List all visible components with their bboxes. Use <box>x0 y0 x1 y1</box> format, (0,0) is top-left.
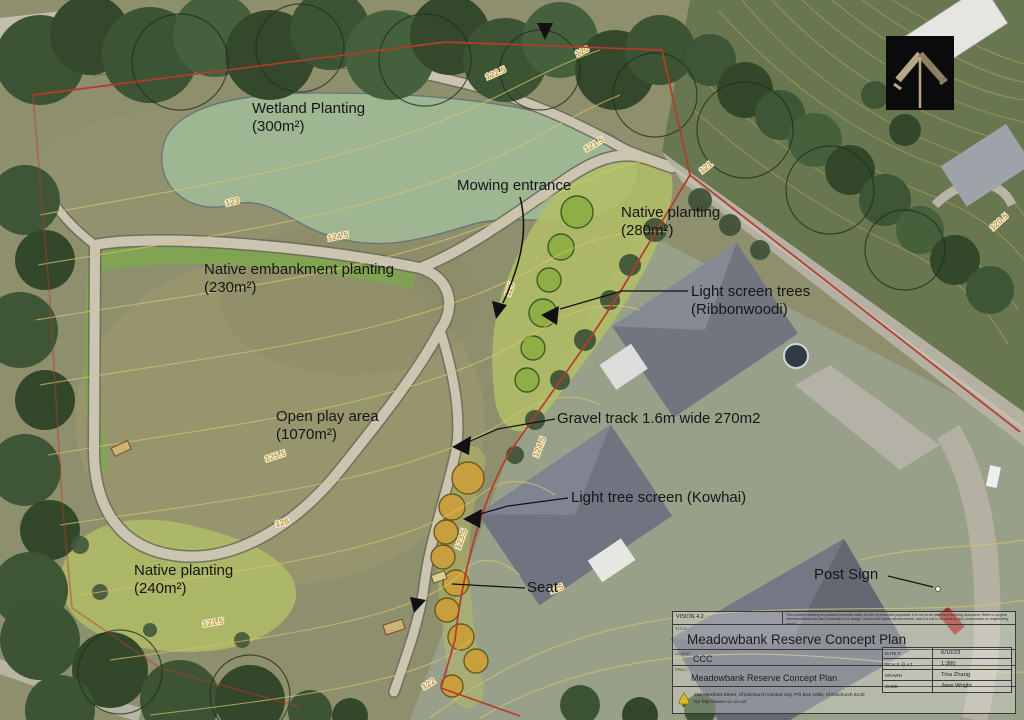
seat-label: Seat <box>527 579 559 596</box>
title-block: VISION 4.2 This concept drawing is provi… <box>672 611 1016 714</box>
native-planting-sw-area-label: (240m²) <box>134 580 187 597</box>
meta-scale-value: 1:300 <box>933 659 1011 669</box>
sheet-title: Meadowbank Reserve Concept Plan <box>673 625 1015 647</box>
native-planting-ne-label: Native planting <box>621 204 720 221</box>
ribbonwood-species-label: (Ribbonwoodi) <box>691 301 788 318</box>
wetland-label-area: (300m²) <box>252 118 305 135</box>
post-sign-label: Post Sign <box>814 566 878 583</box>
wetland-label: Wetland Planting <box>252 100 365 117</box>
meta-chkd-value: Jane Wright <box>933 681 1011 692</box>
meta-drawn-label: DRAWN <box>883 670 933 680</box>
disclaimer-text: This concept drawing is provided herewit… <box>783 612 1015 624</box>
client-field-label: CLIENT <box>675 651 691 656</box>
company-address: 236 Hereford Street, Christchurch Centra… <box>694 693 865 699</box>
kowhai-label: Light tree screen (Kowhai) <box>571 489 746 506</box>
open-play-label: Open play area <box>276 408 379 425</box>
meta-drawn-value: Tina Zhang <box>933 670 1011 680</box>
embankment-label: Native embankment planting <box>204 261 394 278</box>
company-logo <box>677 692 691 708</box>
native-planting-ne-area-label: (280m²) <box>621 222 674 239</box>
meta-date-value: 6/10/23 <box>933 648 1011 658</box>
ribbonwood-label: Light screen trees <box>691 283 810 300</box>
sheet-version: VISION 4.2 <box>673 612 783 624</box>
native-planting-sw-label: Native planting <box>134 562 233 579</box>
project-field-label: PROJ <box>675 667 687 672</box>
open-play-area-label: (1070m²) <box>276 426 337 443</box>
company-website: NZ http://www.ccc.co.nz/ <box>694 700 865 706</box>
meta-chkd-label: CHKD <box>883 681 933 692</box>
pool <box>784 344 808 368</box>
meta-scale-label: SCALE @ A3 <box>883 659 933 669</box>
post-sign-marker <box>936 587 941 592</box>
drawing-meta-table: DATE # 6/10/23 SCALE @ A3 1:300 DRAWN Ti… <box>882 647 1012 693</box>
north-arrow-icon <box>886 36 954 110</box>
meta-date-label: DATE # <box>883 648 933 658</box>
mowing-entrance-label: Mowing entrance <box>457 177 571 194</box>
gravel-track-label: Gravel track 1.6m wide 270m2 <box>557 410 760 427</box>
embankment-area-label: (230m²) <box>204 279 257 296</box>
concept-plan-sheet: 123124.5122.5120121.5121130120.5125124.5… <box>0 0 1024 720</box>
title-field-label: TITLE <box>675 626 687 631</box>
